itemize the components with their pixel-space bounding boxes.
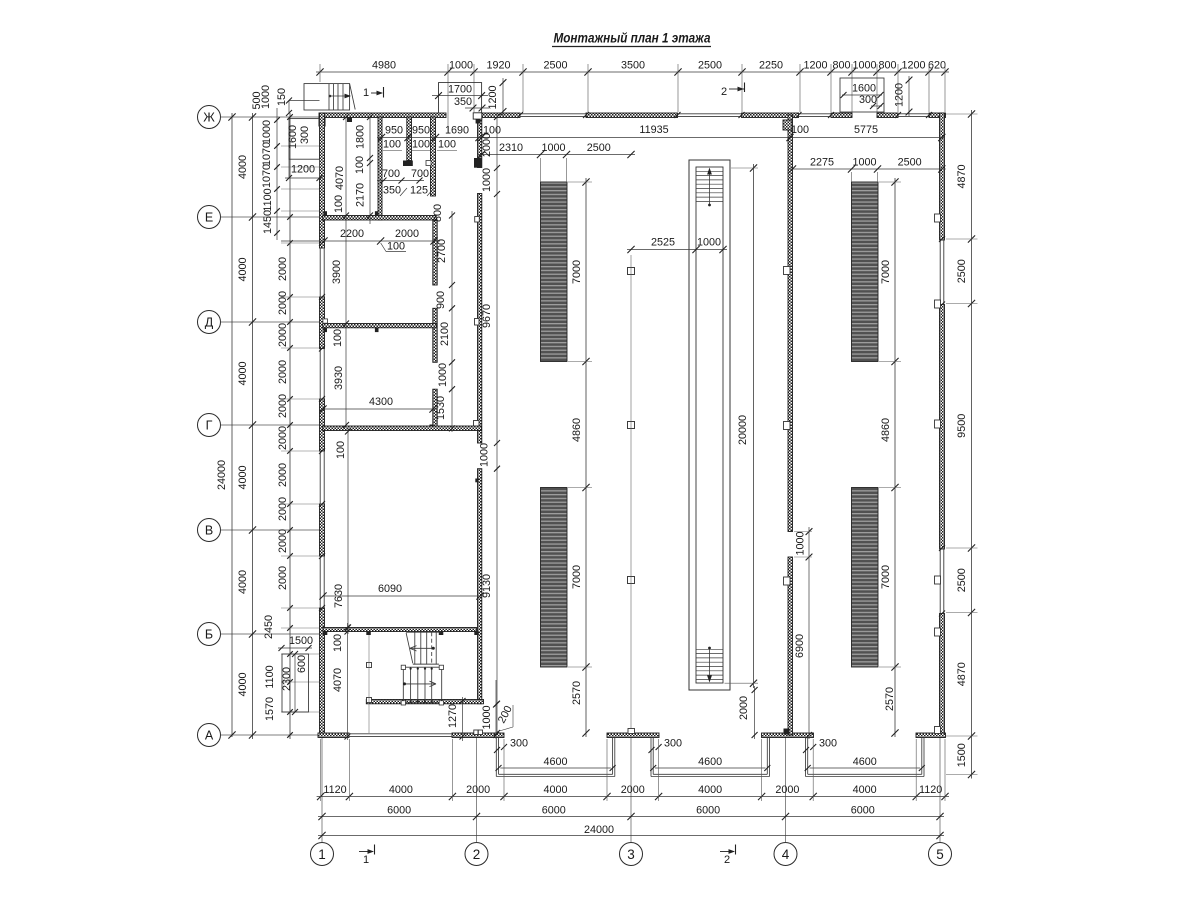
svg-text:2525: 2525 [651,237,675,249]
svg-text:600: 600 [296,655,308,673]
svg-text:1200: 1200 [803,60,827,72]
svg-text:2250: 2250 [759,60,783,72]
svg-text:800: 800 [432,204,444,222]
svg-text:7000: 7000 [571,260,583,284]
svg-text:5775: 5775 [854,124,878,136]
svg-text:1450: 1450 [262,210,274,234]
svg-text:1000: 1000 [541,142,565,154]
svg-text:950: 950 [385,125,403,137]
svg-text:100: 100 [333,195,345,213]
svg-text:1200: 1200 [894,83,906,107]
svg-text:1530: 1530 [435,396,447,420]
svg-text:300: 300 [664,738,682,750]
svg-text:2000: 2000 [621,784,645,796]
svg-text:100: 100 [438,139,456,151]
svg-text:4000: 4000 [237,361,249,385]
svg-text:1200: 1200 [487,85,499,109]
svg-text:100: 100 [412,139,430,151]
svg-text:2500: 2500 [956,568,968,592]
svg-text:2450: 2450 [263,615,275,639]
svg-text:7000: 7000 [880,565,892,589]
svg-text:300: 300 [819,738,837,750]
svg-text:2000: 2000 [277,257,289,281]
svg-text:9130: 9130 [481,574,493,598]
svg-text:2000: 2000 [277,529,289,553]
svg-text:1100: 1100 [262,188,274,211]
svg-text:9500: 9500 [956,414,968,438]
svg-text:4000: 4000 [237,155,249,179]
svg-text:3900: 3900 [331,260,343,284]
svg-text:2310: 2310 [499,142,523,154]
svg-text:1700: 1700 [448,84,472,96]
svg-text:350: 350 [383,185,401,197]
svg-text:1920: 1920 [486,60,510,72]
svg-text:3500: 3500 [621,60,645,72]
svg-text:20000: 20000 [737,415,749,445]
svg-text:4600: 4600 [543,756,567,768]
svg-text:1600: 1600 [852,83,876,95]
svg-text:2000: 2000 [481,133,493,157]
svg-text:2500: 2500 [543,60,567,72]
svg-text:5: 5 [936,847,944,862]
svg-text:2000: 2000 [738,696,750,720]
svg-text:4: 4 [782,847,790,862]
svg-text:100: 100 [791,124,809,136]
svg-text:800: 800 [832,60,850,72]
svg-text:4600: 4600 [698,756,722,768]
svg-text:620: 620 [928,60,946,72]
svg-text:300: 300 [299,126,311,144]
svg-text:1200: 1200 [901,60,925,72]
svg-text:1: 1 [363,87,369,99]
svg-text:2000: 2000 [277,426,289,450]
svg-text:1270: 1270 [447,704,459,728]
svg-text:1000: 1000 [481,168,493,192]
svg-text:800: 800 [878,60,896,72]
svg-text:4860: 4860 [571,418,583,442]
svg-text:1100: 1100 [264,665,276,688]
svg-text:1570: 1570 [264,697,276,721]
svg-text:1: 1 [363,854,369,866]
svg-text:1000: 1000 [261,120,273,144]
svg-text:4000: 4000 [237,570,249,594]
svg-text:3930: 3930 [333,366,345,390]
svg-text:300: 300 [859,94,877,106]
svg-text:1000: 1000 [697,237,721,249]
svg-text:2170: 2170 [355,183,367,207]
svg-text:700: 700 [382,168,400,180]
svg-text:2000: 2000 [277,394,289,418]
svg-text:4000: 4000 [543,784,567,796]
svg-text:7000: 7000 [571,565,583,589]
svg-text:4000: 4000 [237,465,249,489]
svg-text:1500: 1500 [956,743,968,767]
svg-text:9670: 9670 [481,304,493,328]
svg-text:1000: 1000 [852,60,876,72]
svg-text:4870: 4870 [956,164,968,188]
svg-text:2570: 2570 [884,687,896,711]
svg-text:1120: 1120 [919,784,942,796]
svg-text:2300: 2300 [281,667,293,691]
svg-text:1000: 1000 [852,157,876,169]
svg-text:А: А [205,728,214,742]
svg-text:2500: 2500 [698,60,722,72]
svg-text:4070: 4070 [334,166,346,190]
svg-text:6090: 6090 [378,583,402,595]
svg-text:300: 300 [510,738,528,750]
svg-text:7630: 7630 [333,584,345,608]
svg-text:Б: Б [205,627,213,641]
svg-text:1800: 1800 [355,125,367,149]
svg-text:1000: 1000 [479,443,491,467]
svg-text:6000: 6000 [851,805,875,817]
svg-text:2000: 2000 [277,566,289,590]
svg-text:2275: 2275 [810,157,834,169]
svg-text:1200: 1200 [291,164,315,176]
svg-text:1070: 1070 [261,164,273,188]
svg-text:100: 100 [354,156,366,174]
svg-text:1120: 1120 [323,784,346,796]
svg-text:1: 1 [318,847,326,862]
svg-text:2500: 2500 [898,157,922,169]
svg-text:Е: Е [205,210,213,224]
svg-text:2000: 2000 [277,360,289,384]
svg-text:24000: 24000 [584,824,614,836]
svg-text:1000: 1000 [449,60,473,72]
svg-text:4000: 4000 [237,257,249,281]
svg-text:1500: 1500 [289,635,313,647]
svg-text:2700: 2700 [436,239,448,263]
svg-text:6900: 6900 [794,634,806,658]
svg-text:4000: 4000 [698,784,722,796]
svg-text:100: 100 [387,241,405,253]
svg-text:6000: 6000 [696,805,720,817]
svg-text:4860: 4860 [880,418,892,442]
svg-text:Г: Г [206,418,213,432]
svg-text:1600: 1600 [287,125,299,149]
svg-text:2000: 2000 [277,323,289,347]
svg-text:1000: 1000 [260,85,272,109]
svg-text:2: 2 [721,86,727,98]
svg-text:125: 125 [410,185,428,197]
svg-text:950: 950 [412,125,430,137]
svg-text:2570: 2570 [571,681,583,705]
svg-text:2000: 2000 [277,497,289,521]
svg-text:2000: 2000 [775,784,799,796]
svg-text:4070: 4070 [332,668,344,692]
svg-text:6000: 6000 [387,805,411,817]
svg-text:2100: 2100 [439,322,451,346]
svg-text:100: 100 [332,634,344,652]
svg-text:3: 3 [627,847,635,862]
svg-text:2: 2 [473,847,481,862]
svg-text:100: 100 [332,329,344,347]
svg-text:1000: 1000 [437,363,449,387]
svg-text:2000: 2000 [277,463,289,487]
svg-text:4980: 4980 [372,60,396,72]
svg-text:24000: 24000 [216,460,228,490]
svg-text:2: 2 [724,854,730,866]
svg-text:100: 100 [335,441,347,459]
svg-text:1000: 1000 [795,531,807,555]
svg-text:2000: 2000 [395,228,419,240]
svg-text:6000: 6000 [542,805,566,817]
svg-text:2000: 2000 [277,291,289,315]
svg-text:350: 350 [454,96,472,108]
svg-text:2500: 2500 [587,142,611,154]
svg-text:700: 700 [411,168,429,180]
svg-text:2000: 2000 [466,784,490,796]
svg-text:7000: 7000 [880,260,892,284]
svg-text:4300: 4300 [369,396,393,408]
svg-text:11935: 11935 [639,124,668,136]
svg-text:4000: 4000 [853,784,877,796]
svg-text:1690: 1690 [445,125,469,137]
svg-text:4000: 4000 [237,672,249,696]
svg-text:100: 100 [383,139,401,151]
svg-text:900: 900 [435,291,447,309]
svg-text:Монтажный план 1 этажа: Монтажный план 1 этажа [554,31,711,46]
svg-text:Д: Д [205,315,214,329]
svg-text:2500: 2500 [956,259,968,283]
svg-text:1000: 1000 [481,705,493,729]
svg-text:Ж: Ж [203,110,215,124]
svg-text:4600: 4600 [853,756,877,768]
svg-text:4870: 4870 [956,662,968,686]
svg-text:1070: 1070 [261,142,273,166]
svg-text:2200: 2200 [340,228,364,240]
svg-text:4000: 4000 [389,784,413,796]
svg-text:В: В [205,523,213,537]
